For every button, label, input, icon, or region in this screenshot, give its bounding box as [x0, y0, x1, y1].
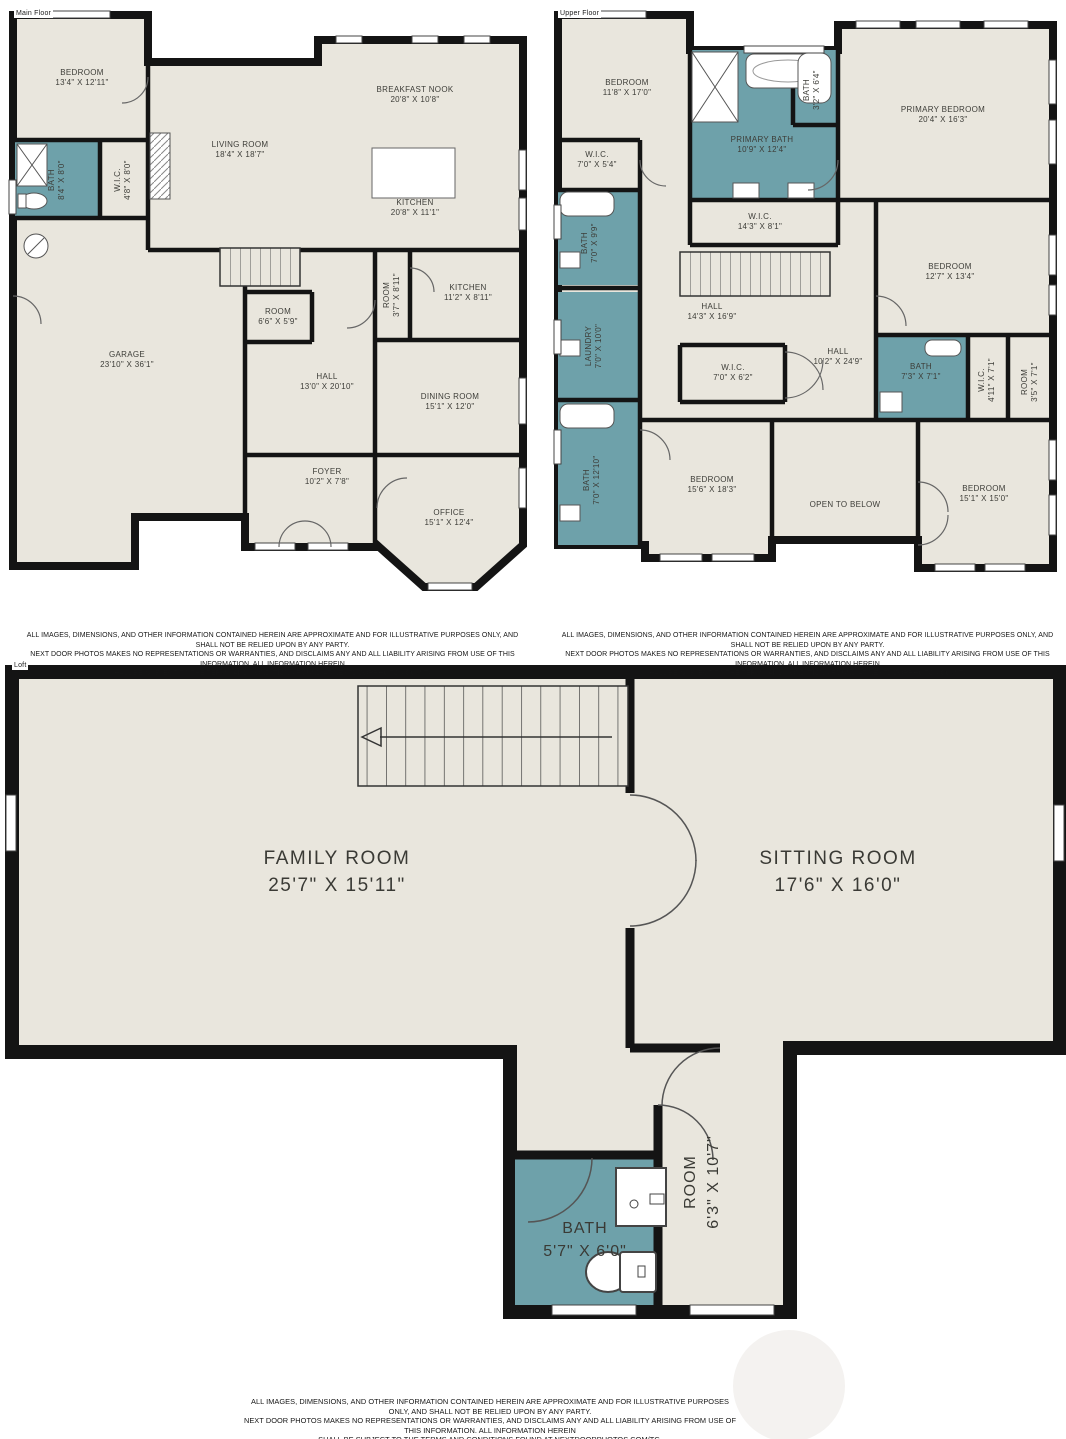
loft-room-label: ROOM6'3" X 10'7"	[679, 1135, 725, 1229]
toilet-tank-icon	[18, 194, 26, 208]
main-room2-label: ROOM6'6" X 5'9"	[258, 307, 298, 327]
loft-bath-label: BATH5'7" X 6'0"	[543, 1217, 627, 1263]
bath-toilet-icon	[925, 340, 961, 356]
sitting-room-label: SITTING ROOM17'6" X 16'0"	[759, 845, 916, 899]
kitchen-label: KITCHEN20'8" X 11'1"	[391, 198, 440, 218]
office-label: OFFICE15'1" X 12'4"	[424, 508, 473, 528]
floor-plan-drawing	[0, 0, 1066, 1439]
foyer-label: FOYER10'2" X 7'8"	[305, 467, 349, 487]
kitchen-island	[372, 148, 455, 198]
living-room-label: LIVING ROOM18'4" X 18'7"	[212, 140, 269, 160]
upper-wic4-label: W.I.C.4'11" X 7'1"	[977, 358, 997, 402]
upper-floor-tag: Upper Floor	[558, 9, 601, 18]
fireplace-hatch	[150, 133, 170, 199]
lower-bath-tub-icon	[560, 404, 614, 428]
small-bath-label: BATH3'2" X 6'4"	[802, 70, 822, 110]
main-bath-label: BATH8'4" X 8'0"	[47, 160, 67, 200]
primary-bedroom-label: PRIMARY BEDROOM20'4" X 16'3"	[901, 105, 985, 125]
upper-bedroom3-label: BEDROOM15'6" X 18'3"	[687, 475, 736, 495]
disclaimer-upper: ALL IMAGES, DIMENSIONS, AND OTHER INFORM…	[560, 631, 1055, 679]
upper-hall2-label: HALL10'2" X 24'9"	[813, 347, 862, 367]
garage-label: GARAGE23'10" X 36'1"	[100, 350, 154, 370]
main-stairs	[220, 248, 300, 286]
upper-bedroom4-label: BEDROOM15'1" X 15'0"	[959, 484, 1008, 504]
upper-wic3-label: W.I.C.7'0" X 6'2"	[713, 363, 753, 383]
upper-wic1-label: W.I.C.7'0" X 5'4"	[577, 150, 617, 170]
main-hall-label: HALL13'0" X 20'10"	[300, 372, 354, 392]
upper-room-label: ROOM3'5" X 7'1"	[1020, 362, 1040, 402]
loft-stairs	[358, 686, 628, 786]
family-room-label: FAMILY ROOM25'7" X 15'11"	[264, 845, 411, 899]
primary-bath-label: PRIMARY BATH10'9" X 12'4"	[731, 135, 794, 155]
disclaimer-main: ALL IMAGES, DIMENSIONS, AND OTHER INFORM…	[20, 631, 525, 679]
breakfast-nook-label: BREAKFAST NOOK20'8" X 10'8"	[377, 85, 454, 105]
floor-plan-sheet: Main Floor Upper Floor Loft BEDROOM13'4"…	[0, 0, 1066, 1439]
laundry-label: LAUNDRY7'0" X 10'0"	[584, 324, 604, 368]
loft-sink-faucet	[650, 1194, 664, 1204]
upper-bedroom2-label: BEDROOM12'7" X 13'4"	[925, 262, 974, 282]
loft-plan	[6, 672, 1064, 1315]
upper-bath2-label: BATH7'3" X 7'1"	[901, 362, 941, 382]
upper-bath1-label: BATH7'0" X 9'9"	[580, 223, 600, 263]
photographer-watermark	[733, 1330, 845, 1439]
main-room-label: ROOM3'7" X 8'11"	[382, 273, 402, 317]
upper-wic2-label: W.I.C.14'3" X 8'1"	[738, 212, 782, 232]
main-floor-tag: Main Floor	[14, 9, 53, 18]
upper-bath3-label: BATH7'0" X 12'10"	[582, 455, 602, 504]
upper-bedroom-label: BEDROOM11'8" X 17'0"	[603, 78, 652, 98]
main-bedroom-label: BEDROOM13'4" X 12'11"	[55, 68, 108, 88]
dining-room-label: DINING ROOM15'1" X 12'0"	[421, 392, 479, 412]
main-wic-label: W.I.C.4'8" X 8'0"	[113, 160, 133, 200]
upper-hall1-label: HALL14'3" X 16'9"	[687, 302, 736, 322]
hall-bath-tub-icon	[560, 192, 614, 216]
kitchen2-label: KITCHEN11'2" X 8'11"	[444, 283, 492, 303]
open-to-below-label: OPEN TO BELOW	[810, 500, 881, 510]
disclaimer-loft: ALL IMAGES, DIMENSIONS, AND OTHER INFORM…	[240, 1397, 740, 1439]
upper-stairs	[680, 252, 830, 296]
